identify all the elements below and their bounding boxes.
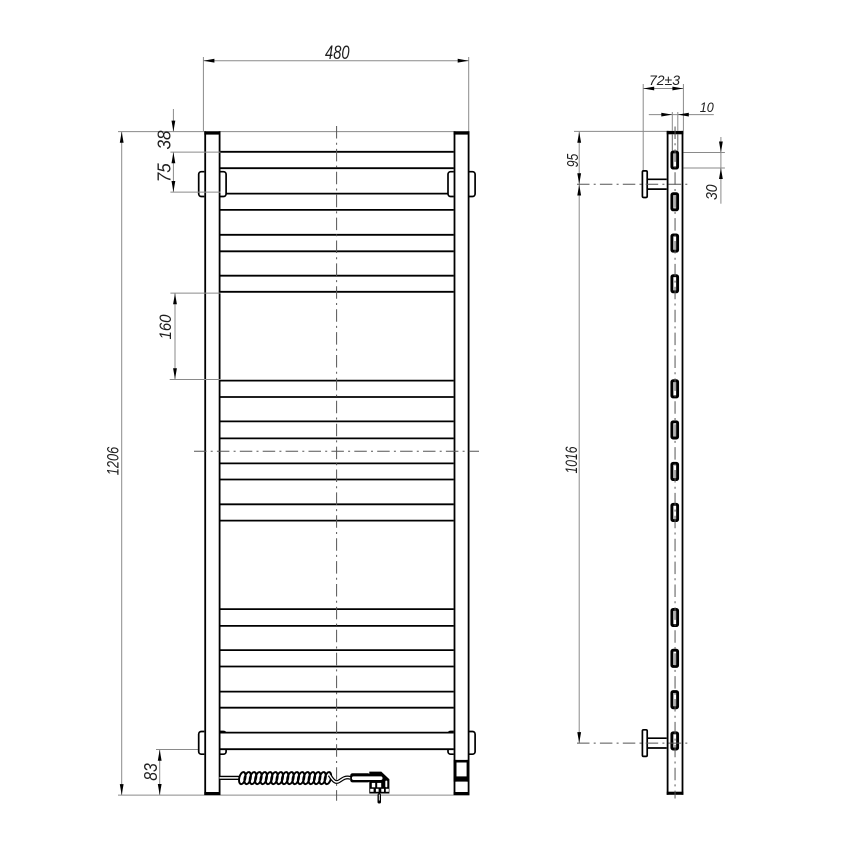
svg-text:30: 30 (704, 184, 721, 200)
svg-text:160: 160 (156, 314, 175, 339)
svg-text:1016: 1016 (563, 446, 581, 474)
svg-text:38: 38 (154, 131, 174, 150)
svg-text:95: 95 (565, 154, 582, 168)
svg-text:10: 10 (700, 99, 714, 115)
svg-text:480: 480 (325, 43, 350, 64)
svg-text:75: 75 (154, 162, 174, 182)
svg-text:72±3: 72±3 (649, 72, 680, 88)
svg-text:1206: 1206 (104, 446, 123, 475)
svg-text:83: 83 (141, 763, 161, 781)
